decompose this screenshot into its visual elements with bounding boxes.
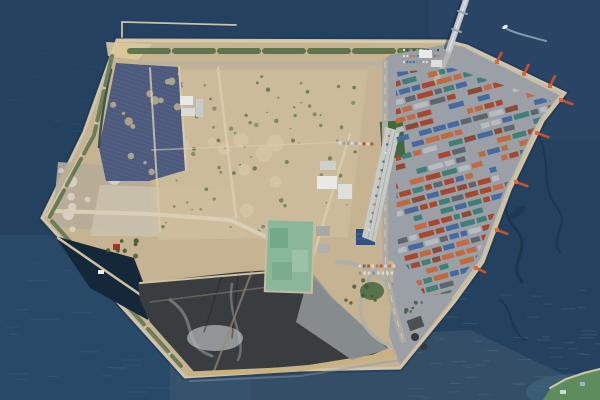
tip-tank-2 [421, 344, 428, 351]
south-truck-row-1 [359, 265, 396, 268]
shed-2 [181, 108, 195, 116]
sports-field-patch-1 [270, 228, 288, 248]
north-beach [120, 41, 448, 42]
sports-field-patch-3 [272, 262, 292, 280]
terminal-parking-row-3 [403, 61, 431, 63]
gray-pad-1 [316, 226, 330, 236]
shoal-building-2 [580, 382, 585, 386]
shoal-building-1 [560, 390, 566, 394]
shed-3 [196, 99, 203, 117]
gray-pad-2 [318, 244, 330, 253]
red-roof-building [113, 244, 120, 250]
warehouse-1 [317, 176, 337, 189]
warehouse-3 [320, 161, 336, 170]
lagoon-platform [98, 270, 104, 274]
terminal-office-1 [419, 50, 432, 58]
terminal-office-2 [431, 60, 442, 67]
shed-1 [180, 96, 193, 105]
sports-field-patch-2 [292, 250, 308, 272]
tip-tank-1 [411, 333, 419, 341]
warehouse-2 [338, 184, 352, 199]
scene-canvas [0, 0, 600, 400]
aerial-satellite-photo [0, 0, 600, 400]
ash-wet-pond [187, 325, 243, 351]
